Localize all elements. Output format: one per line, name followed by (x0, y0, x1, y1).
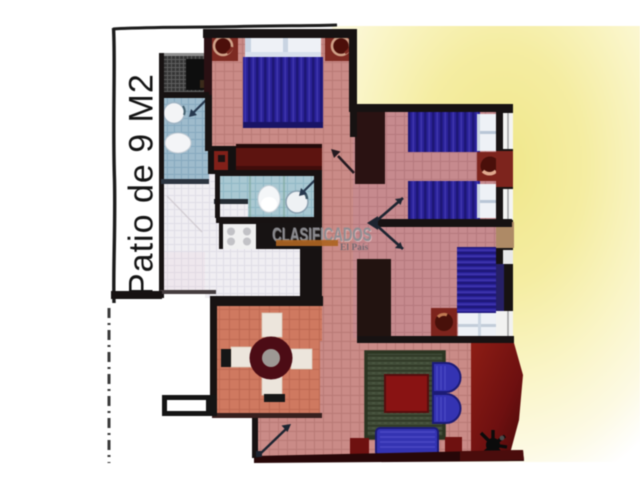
svg-text:Patio de 9 M2: Patio de 9 M2 (123, 73, 161, 296)
svg-text:El País: El País (340, 243, 369, 253)
